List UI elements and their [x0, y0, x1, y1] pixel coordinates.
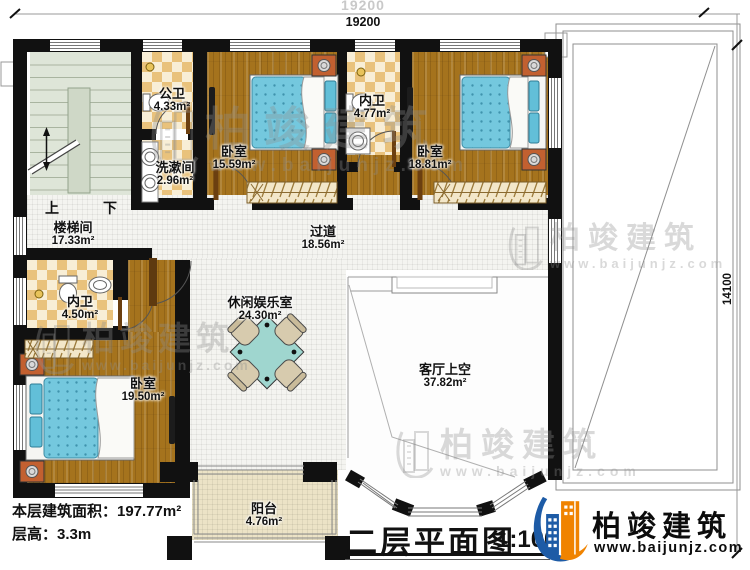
watermark: 柏竣建筑 www.baijunjz.com [82, 322, 251, 372]
watermark-logo-icon [394, 426, 434, 478]
room-name: 卧室 [122, 377, 165, 391]
room-label-bedroom-c: 卧室 19.50m² [122, 377, 165, 403]
room-area: 17.33m² [52, 235, 95, 247]
room-area: 4.33m² [154, 101, 190, 113]
room-area: 24.30m² [227, 310, 292, 322]
room-area: 4.77m² [354, 108, 390, 120]
plan-linework [0, 0, 750, 570]
room-name: 客厅上空 [419, 363, 471, 377]
brand-name: 柏竣建筑 [592, 503, 732, 545]
watermark: 柏竣建筑 www.baijunjz.com [550, 224, 726, 270]
brand-logo-icon [528, 492, 592, 568]
room-name: 洗漱间 [155, 161, 194, 175]
room-label-ensuite-a: 内卫 4.77m² [354, 94, 390, 120]
dimension-total-width-faint: 19200 [341, 0, 385, 13]
room-label-hallway: 过道 18.56m² [302, 225, 345, 251]
watermark-name: 柏竣建筑 [550, 224, 726, 254]
watermark-site: www.baijunjz.com [82, 358, 251, 372]
room-label-balcony: 阳台 4.76m² [246, 502, 282, 528]
room-name: 休闲娱乐室 [227, 296, 292, 310]
room-area: 4.50m² [62, 309, 98, 321]
stairs-down-label: 下 [103, 198, 117, 218]
stairs [28, 65, 131, 193]
stairs-up-label: 上 [45, 198, 59, 218]
room-name: 内卫 [62, 295, 98, 309]
watermark-name: 柏竣建筑 [440, 428, 641, 461]
room-label-ensuite-b: 内卫 4.50m² [62, 295, 98, 321]
room-area: 2.96m² [155, 175, 194, 187]
floor-plan-page: 柏竣建筑 www.baijunjz.com 柏竣建筑 www.baijunjz.… [0, 0, 750, 570]
room-name: 卧室 [213, 145, 256, 159]
room-name: 卧室 [409, 145, 452, 159]
room-label-public-bath: 公卫 4.33m² [154, 87, 190, 113]
brand-website: www.baijunjz.com [594, 540, 743, 556]
watermark-name: 柏竣建筑 [82, 322, 251, 355]
floor-height-text: 层高：3.3m [12, 523, 91, 544]
room-area: 4.76m² [246, 516, 282, 528]
room-label-living-void: 客厅上空 37.82m² [419, 363, 471, 389]
floor-area-text: 本层建筑面积：197.77m² [12, 500, 181, 521]
room-area: 37.82m² [419, 377, 471, 389]
room-name: 楼梯间 [52, 221, 95, 235]
dimension-total-width: 19200 [346, 15, 381, 29]
room-label-bedroom-a: 卧室 15.59m² [213, 145, 256, 171]
watermark-site: www.baijunjz.com [550, 257, 726, 270]
room-name: 过道 [302, 225, 345, 239]
watermark-logo-icon [33, 320, 75, 374]
room-label-recreation: 休闲娱乐室 24.30m² [227, 296, 292, 322]
room-area: 18.56m² [302, 239, 345, 251]
room-name: 阳台 [246, 502, 282, 516]
watermark-logo-icon [506, 222, 544, 270]
bed-b [460, 55, 546, 170]
room-area: 19.50m² [122, 391, 165, 403]
title-underline [345, 553, 550, 556]
room-label-stairwell: 楼梯间 17.33m² [52, 221, 95, 247]
room-area: 18.81m² [409, 159, 452, 171]
bay-window [348, 475, 544, 516]
watermark-site: www.baijunjz.com [440, 464, 641, 478]
room-area: 15.59m² [213, 159, 256, 171]
room-name: 公卫 [154, 87, 190, 101]
dimension-total-height: 14100 [722, 273, 734, 305]
room-label-bedroom-b: 卧室 18.81m² [409, 145, 452, 171]
title-underline-thin [345, 559, 550, 560]
room-label-washroom: 洗漱间 2.96m² [155, 161, 194, 187]
watermark: 柏竣建筑 www.baijunjz.com [440, 428, 641, 478]
room-name: 内卫 [354, 94, 390, 108]
